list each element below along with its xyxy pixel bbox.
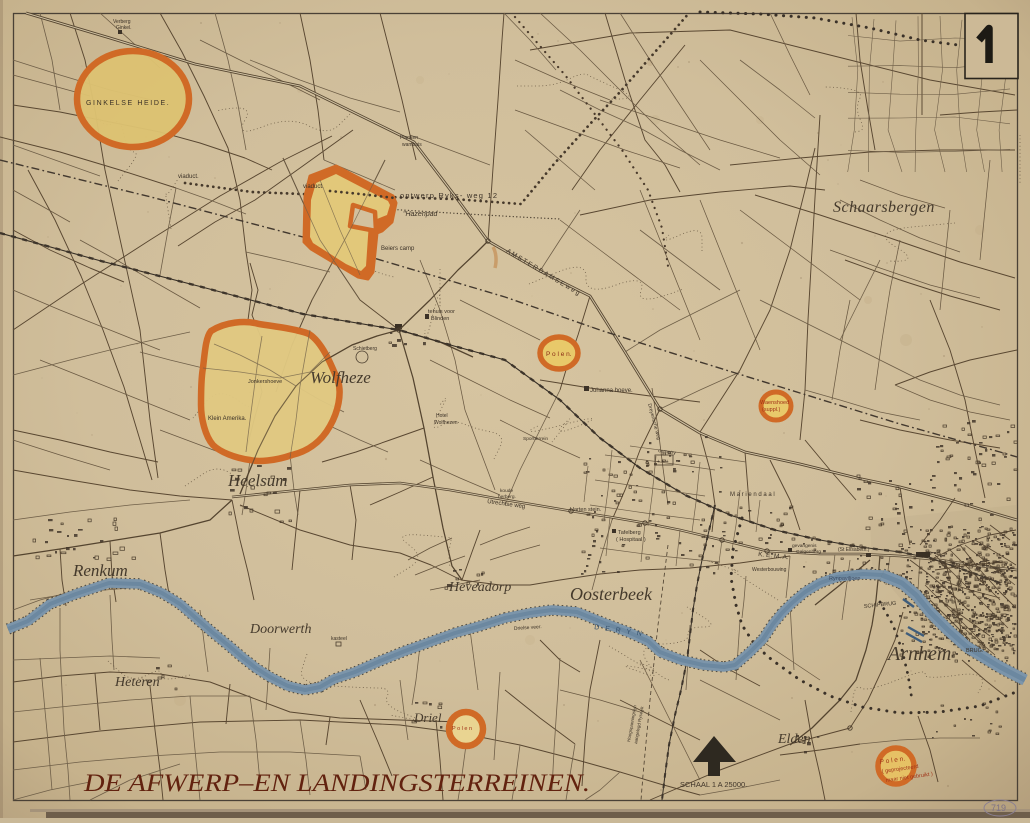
svg-text:Arnhem: Arnhem bbox=[886, 643, 951, 665]
svg-text:Heveadorp: Heveadorp bbox=[448, 580, 511, 595]
svg-text:Wolfheze: Wolfheze bbox=[310, 368, 371, 387]
svg-text:Jonkershoeve: Jonkershoeve bbox=[248, 379, 282, 385]
svg-text:"Hazenpad: "Hazenpad bbox=[403, 211, 439, 218]
svg-text:SCHAAL 1 A 25000.: SCHAAL 1 A 25000. bbox=[680, 780, 747, 789]
svg-text:Beiers camp: Beiers camp bbox=[381, 246, 415, 252]
svg-text:GINKELSE HEIDE.: GINKELSE HEIDE. bbox=[86, 100, 170, 107]
svg-text:Galgenberg: Galgenberg bbox=[796, 549, 821, 555]
svg-text:BRUG.: BRUG. bbox=[966, 648, 984, 654]
svg-text:( Hospitaal ): ( Hospitaal ) bbox=[616, 537, 646, 543]
svg-text:719: 719 bbox=[991, 803, 1006, 813]
svg-text:P o l e n: P o l e n bbox=[452, 726, 472, 732]
svg-text:Schietberg: Schietberg bbox=[353, 346, 377, 352]
svg-text:tehuis voor: tehuis voor bbox=[428, 309, 455, 315]
svg-text:(suppl.): (suppl.) bbox=[762, 407, 781, 413]
svg-text:Oosterbeek: Oosterbeek bbox=[570, 584, 653, 604]
svg-text:+ + +: + + + bbox=[657, 459, 669, 465]
svg-text:Rynpaviljoen: Rynpaviljoen bbox=[829, 576, 861, 582]
svg-text:Blinden: Blinden bbox=[431, 316, 449, 322]
svg-text:Driel: Driel bbox=[413, 710, 442, 725]
svg-text:DE AFWERP–EN LANDINGSTERREINEN: DE AFWERP–EN LANDINGSTERREINEN. bbox=[83, 770, 590, 797]
svg-text:Tafelberg: Tafelberg bbox=[618, 530, 641, 536]
svg-text:Hotel: Hotel bbox=[436, 413, 448, 419]
svg-text:koude: koude bbox=[500, 488, 513, 494]
svg-text:Sportterrein: Sportterrein bbox=[523, 436, 548, 442]
svg-text:Harten stein.: Harten stein. bbox=[570, 507, 602, 513]
svg-text:herberg.: herberg. bbox=[498, 494, 516, 500]
svg-text:Wolfhezen: Wolfhezen bbox=[434, 420, 458, 426]
svg-text:Elden: Elden bbox=[777, 732, 811, 747]
svg-text:viaduct.: viaduct. bbox=[303, 184, 324, 190]
svg-text:wambuis: wambuis bbox=[402, 142, 422, 148]
svg-text:Doorwerth: Doorwerth bbox=[249, 622, 311, 637]
svg-text:Heelsum: Heelsum bbox=[227, 471, 287, 490]
svg-text:gevangenis: gevangenis bbox=[792, 543, 817, 549]
svg-text:Waenshoed: Waenshoed bbox=[760, 400, 789, 406]
svg-text:Johanna hoeve.: Johanna hoeve. bbox=[590, 388, 633, 394]
svg-text:Klein Amerika.: Klein Amerika. bbox=[208, 416, 247, 422]
svg-text:Planken: Planken bbox=[400, 135, 418, 141]
svg-text:P o l e n.: P o l e n. bbox=[546, 351, 572, 358]
svg-text:viaduct.: viaduct. bbox=[178, 174, 199, 180]
svg-text:ontwerp Ryks- weg 12: ontwerp Ryks- weg 12 bbox=[400, 191, 498, 200]
svg-text:kasteel: kasteel bbox=[331, 636, 347, 642]
svg-text:Schaarsbergen: Schaarsbergen bbox=[833, 199, 935, 216]
svg-text:M a r i e n d a a l: M a r i e n d a a l bbox=[730, 492, 775, 498]
svg-text:Renkum: Renkum bbox=[72, 561, 128, 580]
svg-text:(St Elisabeth.): (St Elisabeth.) bbox=[838, 547, 870, 553]
svg-text:Westerbouwing: Westerbouwing bbox=[752, 567, 787, 573]
svg-text:Heteren: Heteren bbox=[114, 675, 160, 690]
